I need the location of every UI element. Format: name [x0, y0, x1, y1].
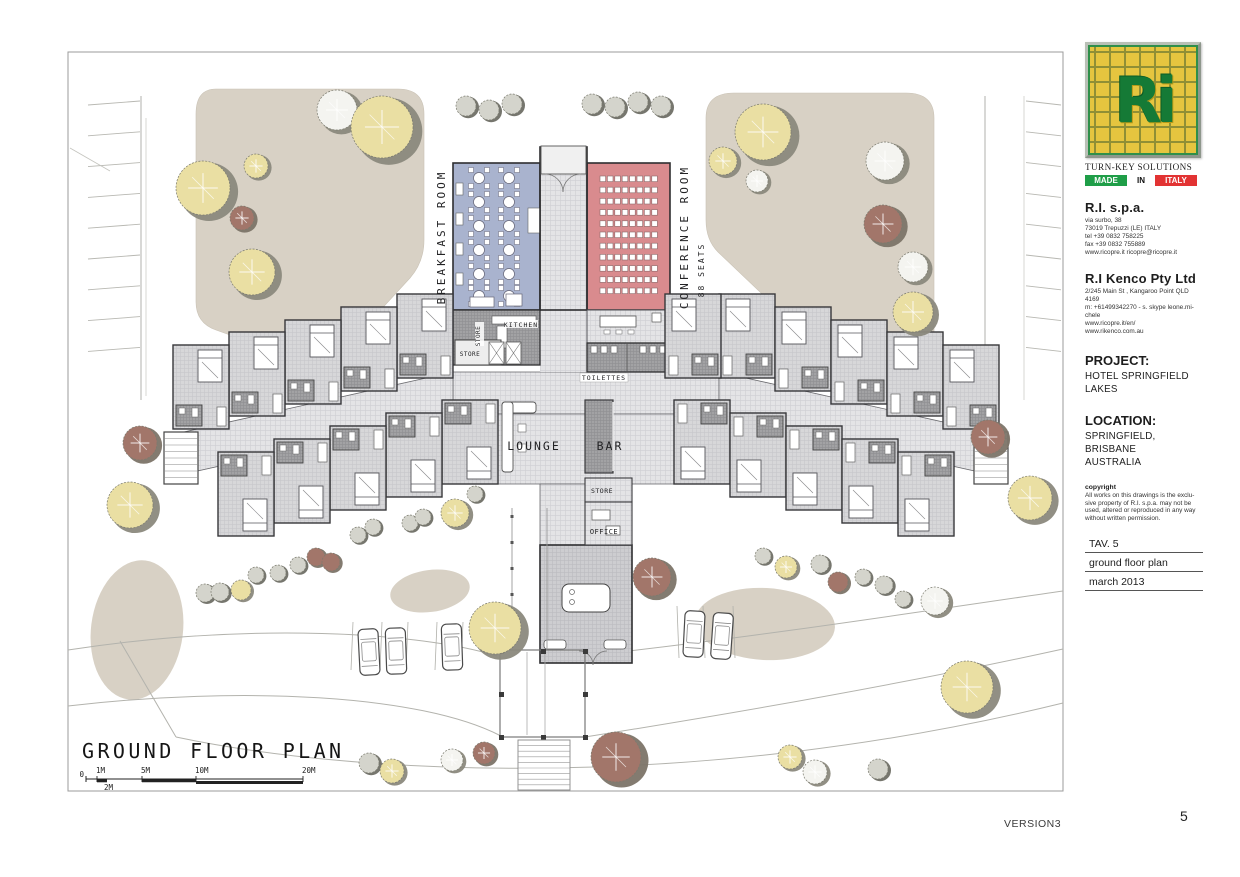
label-store-lower: STORE: [591, 487, 613, 495]
company-australia-address: 2/245 Main St , Kangaroo Point QLD4169m:…: [1085, 288, 1205, 336]
project-label: PROJECT:: [1085, 353, 1205, 368]
version-label: VERSION3: [1004, 818, 1061, 830]
location-label: LOCATION:: [1085, 413, 1205, 428]
label-lounge: LOUNGE: [507, 439, 561, 453]
company-logo: Ri: [1085, 42, 1201, 158]
scalebar-label: 10M: [195, 766, 209, 775]
company-italy-address-item: tel +39 0832 758225: [1085, 233, 1205, 241]
company-australia-address-item: 4169: [1085, 296, 1205, 304]
label-kitchen: KITCHEN: [504, 321, 538, 329]
label-store-kitchen: STORE: [475, 326, 482, 347]
company-australia-name: R.I Kenco Pty Ltd: [1085, 271, 1205, 286]
location-name-item: AUSTRALIA: [1085, 456, 1205, 469]
company-australia-address-item: 2/245 Main St , Kangaroo Point QLD: [1085, 288, 1205, 296]
project-name-item: LAKES: [1085, 383, 1205, 396]
label-conference-seats: 88 SEATS: [697, 243, 706, 298]
company-italy-address-item: fax +39 0832 755889: [1085, 241, 1205, 249]
location-name-item: BRISBANE: [1085, 443, 1205, 456]
title-block: Ri TURN-KEY SOLUTIONS MADE IN ITALY R.I.…: [1085, 42, 1205, 591]
label-office: OFFICE: [590, 528, 618, 536]
copyright-text-item: All works on this drawings is the exclu-: [1085, 492, 1205, 500]
company-italy-address-item: via surbo, 38: [1085, 217, 1205, 225]
copyright-label: copyright: [1085, 484, 1205, 491]
revision-date: march 2013: [1085, 572, 1203, 591]
label-conference-room: CONFERENCE ROOM: [678, 165, 691, 309]
company-italy-address-item: www.ricopre.it ricopre@ricopre.it: [1085, 249, 1205, 257]
scalebar-label: 5M: [141, 766, 151, 775]
revision-table: TAV. 5 ground floor plan march 2013: [1085, 534, 1203, 591]
company-australia: R.I Kenco Pty Ltd 2/245 Main St , Kangar…: [1085, 271, 1205, 336]
location-name-item: SPRINGFIELD,: [1085, 430, 1205, 443]
made-in-italy-badges: MADE IN ITALY: [1085, 175, 1197, 186]
copyright-text-item: without written permission.: [1085, 515, 1205, 523]
project-section: PROJECT: HOTEL SPRINGFIELDLAKES: [1085, 353, 1205, 396]
copyright-text-item: sive property of R.I. s.p.a. may not be: [1085, 500, 1205, 508]
label-store-mid: STORE: [460, 351, 481, 358]
revision-tav: TAV. 5: [1085, 534, 1203, 553]
copyright-section: copyright All works on this drawings is …: [1085, 484, 1205, 522]
company-australia-address-item: m: +61499342270 - s. skype leone.mi-: [1085, 304, 1205, 312]
project-name: HOTEL SPRINGFIELDLAKES: [1085, 370, 1205, 396]
company-italy: R.I. s.p.a. via surbo, 3873019 Trepuzzi …: [1085, 200, 1205, 257]
project-name-item: HOTEL SPRINGFIELD: [1085, 370, 1205, 383]
scalebar-label: 20M: [302, 766, 316, 775]
revision-plan-name: ground floor plan: [1085, 553, 1203, 572]
scalebar-label: 1M: [96, 766, 106, 775]
company-italy-address: via surbo, 3873019 Trepuzzi (LE) ITALYte…: [1085, 217, 1205, 257]
copyright-text-item: used, altered or reproduced in any way: [1085, 507, 1205, 515]
badge-in: IN: [1131, 175, 1151, 186]
company-australia-address-item: chele: [1085, 312, 1205, 320]
scalebar-label: 2M: [104, 783, 114, 792]
company-australia-address-item: www.rikenco.com.au: [1085, 328, 1205, 336]
copyright-text: All works on this drawings is the exclu-…: [1085, 492, 1205, 522]
badge-made: MADE: [1085, 175, 1127, 186]
company-italy-address-item: 73019 Trepuzzi (LE) ITALY: [1085, 225, 1205, 233]
company-italy-name: R.I. s.p.a.: [1085, 200, 1205, 215]
page-number: 5: [1180, 808, 1188, 824]
drawing-title: GROUND FLOOR PLAN: [82, 739, 345, 763]
floor-plan-drawing: BREAKFAST ROOMCONFERENCE ROOM88 SEATSSTO…: [0, 0, 1240, 877]
label-breakfast-room: BREAKFAST ROOM: [435, 170, 448, 305]
logo-monogram: Ri: [1088, 45, 1198, 155]
scalebar-label: 0: [79, 770, 84, 779]
location-section: LOCATION: SPRINGFIELD,BRISBANEAUSTRALIA: [1085, 413, 1205, 469]
label-toilettes: TOILETTES: [582, 374, 626, 382]
company-australia-address-item: www.ricopre.it/en/: [1085, 320, 1205, 328]
location-name: SPRINGFIELD,BRISBANEAUSTRALIA: [1085, 430, 1205, 469]
label-bar: BAR: [597, 439, 624, 453]
logo-tagline: TURN-KEY SOLUTIONS: [1085, 162, 1205, 172]
badge-italy: ITALY: [1155, 175, 1197, 186]
